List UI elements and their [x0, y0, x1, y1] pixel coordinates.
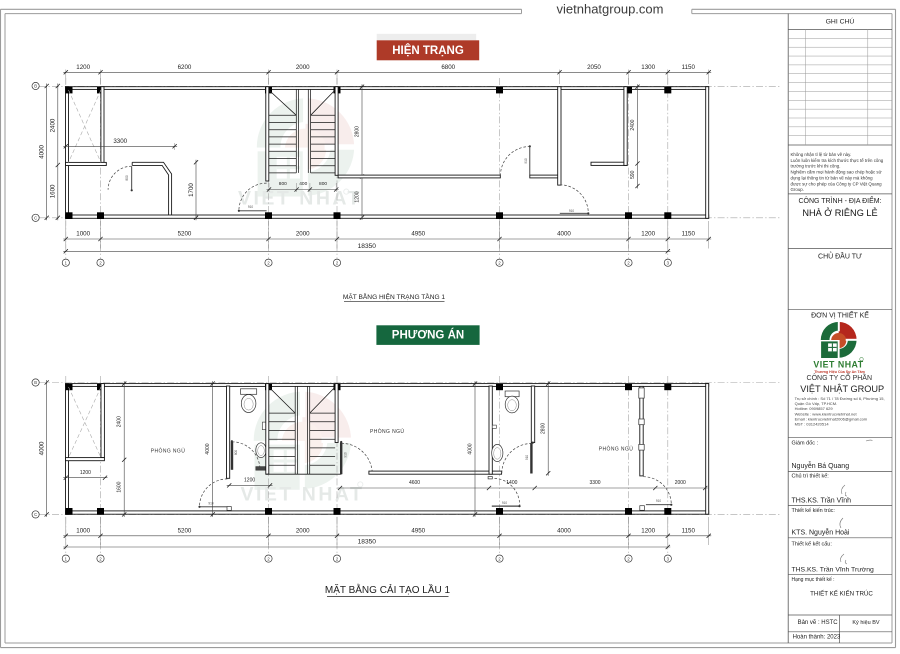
- svg-text:910: 910: [569, 209, 575, 213]
- svg-text:400: 400: [299, 181, 307, 187]
- svg-text:800: 800: [279, 181, 287, 187]
- svg-text:Ký hiệu BV: Ký hiệu BV: [852, 620, 880, 626]
- svg-text:NHÀ Ở RIÊNG LẺ: NHÀ Ở RIÊNG LẺ: [802, 207, 877, 218]
- svg-text:1150: 1150: [682, 64, 696, 71]
- svg-text:MẶT BẰNG CẢI TẠO LẦU 1: MẶT BẰNG CẢI TẠO LẦU 1: [325, 583, 451, 596]
- svg-text:2400: 2400: [117, 416, 123, 427]
- svg-text:4000: 4000: [205, 443, 211, 454]
- svg-text:1200: 1200: [354, 191, 360, 202]
- svg-text:trường trước khi thi công.: trường trước khi thi công.: [791, 164, 841, 169]
- svg-text:4000: 4000: [467, 443, 473, 454]
- svg-text:910: 910: [656, 499, 662, 503]
- svg-text:3300: 3300: [113, 138, 127, 145]
- svg-text:6800: 6800: [441, 64, 455, 71]
- svg-text:1150: 1150: [682, 231, 696, 238]
- svg-text:800: 800: [125, 175, 129, 181]
- svg-text:2000: 2000: [675, 480, 686, 486]
- svg-text:VIET NHAT: VIET NHAT: [813, 359, 863, 369]
- svg-text:910: 910: [525, 455, 529, 461]
- svg-text:PHÒNG NGỦ: PHÒNG NGỦ: [370, 428, 404, 435]
- svg-text:PHÒNG NGỦ: PHÒNG NGỦ: [599, 446, 633, 453]
- svg-text:B: B: [34, 84, 37, 89]
- svg-text:2000: 2000: [296, 528, 310, 535]
- svg-text:THS.KS. Trần Vĩnh Trường: THS.KS. Trần Vĩnh Trường: [792, 564, 875, 573]
- svg-text:910: 910: [208, 501, 214, 505]
- svg-text:1400: 1400: [506, 480, 517, 486]
- svg-text:Nghiêm cấm mọi hành động sao c: Nghiêm cấm mọi hành động sao chép hoặc s…: [791, 170, 882, 175]
- svg-text:4950: 4950: [411, 231, 425, 238]
- svg-text:1200: 1200: [80, 470, 91, 476]
- svg-text:18350: 18350: [358, 243, 377, 250]
- svg-text:2050: 2050: [587, 64, 601, 71]
- svg-text:1600: 1600: [50, 184, 57, 198]
- svg-text:1200: 1200: [244, 478, 255, 484]
- svg-text:1000: 1000: [76, 231, 90, 238]
- svg-text:4950: 4950: [411, 528, 425, 535]
- svg-text:1700: 1700: [188, 183, 195, 197]
- svg-text:Không nhận tỉ lệ từ bản vẽ này: Không nhận tỉ lệ từ bản vẽ này.: [791, 152, 852, 157]
- svg-text:Thiết kế kết cấu:: Thiết kế kết cấu:: [792, 542, 833, 548]
- svg-text:3300: 3300: [589, 480, 600, 486]
- svg-text:THS.KS. Trần Vĩnh: THS.KS. Trần Vĩnh: [792, 496, 852, 505]
- svg-text:Bản vẽ : HSTC: Bản vẽ : HSTC: [798, 620, 839, 626]
- svg-text:4000: 4000: [557, 231, 571, 238]
- svg-text:1600: 1600: [117, 481, 123, 492]
- svg-text:được sự cho phép của Công ty C: được sự cho phép của Công ty CP Việt Qua…: [791, 181, 883, 186]
- svg-text:HIỆN TRẠNG: HIỆN TRẠNG: [392, 44, 464, 57]
- svg-text:KTS. Nguyễn Hoài: KTS. Nguyễn Hoài: [792, 527, 850, 536]
- svg-text:590: 590: [630, 170, 636, 179]
- svg-text:910: 910: [344, 452, 348, 458]
- svg-text:1200: 1200: [641, 528, 655, 535]
- svg-text:Giám đốc :: Giám đốc :: [792, 441, 819, 447]
- svg-text:4000: 4000: [557, 528, 571, 535]
- svg-text:Nguyễn Bá Quang: Nguyễn Bá Quang: [792, 461, 850, 470]
- svg-text:Hoàn thành: 2023: Hoàn thành: 2023: [793, 635, 841, 641]
- svg-text:18350: 18350: [358, 539, 377, 546]
- svg-text:4000: 4000: [39, 441, 46, 455]
- svg-text:800: 800: [319, 181, 327, 187]
- svg-text:PHƯƠNG ÁN: PHƯƠNG ÁN: [392, 329, 464, 342]
- svg-text:MST : 0312420514: MST : 0312420514: [795, 422, 830, 427]
- svg-text:910: 910: [502, 501, 508, 505]
- svg-text:Luôn luôn kiểm tra kích thước: Luôn luôn kiểm tra kích thước thực tế tr…: [791, 158, 884, 163]
- svg-text:dụng lại thông tin từ bản vẽ n: dụng lại thông tin từ bản vẽ này mà khôn…: [791, 175, 874, 180]
- svg-text:1300: 1300: [641, 64, 655, 71]
- svg-text:2000: 2000: [296, 231, 310, 238]
- svg-text:5200: 5200: [178, 231, 192, 238]
- svg-text:Thiết kế kiến trúc:: Thiết kế kiến trúc:: [792, 508, 836, 514]
- svg-text:2800: 2800: [541, 423, 547, 434]
- svg-text:vietnhatgroup.com: vietnhatgroup.com: [557, 2, 664, 17]
- svg-text:2800: 2800: [354, 126, 360, 137]
- svg-text:VIỆT NHẬT GROUP: VIỆT NHẬT GROUP: [800, 384, 884, 394]
- svg-text:THIẾT KẾ KIẾN TRÚC: THIẾT KẾ KIẾN TRÚC: [810, 591, 873, 598]
- svg-text:6200: 6200: [178, 64, 192, 71]
- svg-text:1200: 1200: [76, 64, 90, 71]
- svg-text:Thương Hiệu Của Sự An Tâm: Thương Hiệu Của Sự An Tâm: [814, 370, 865, 374]
- svg-text:Hạng mục thiết kế :: Hạng mục thiết kế :: [792, 577, 835, 583]
- svg-text:Chủ trì thiết kế:: Chủ trì thiết kế:: [792, 473, 830, 480]
- svg-text:800: 800: [234, 450, 238, 456]
- svg-text:5200: 5200: [178, 528, 192, 535]
- svg-text:B: B: [34, 380, 37, 385]
- svg-text:PHÒNG NGỦ: PHÒNG NGỦ: [151, 448, 185, 455]
- svg-text:CÔNG TRÌNH - ĐỊA ĐIỂM:: CÔNG TRÌNH - ĐỊA ĐIỂM:: [798, 196, 881, 205]
- svg-text:2400: 2400: [50, 118, 57, 132]
- svg-text:1150: 1150: [682, 528, 696, 535]
- svg-text:2400: 2400: [630, 119, 636, 130]
- svg-text:GHI CHÚ: GHI CHÚ: [826, 17, 855, 26]
- svg-text:1000: 1000: [76, 528, 90, 535]
- svg-text:1200: 1200: [641, 231, 655, 238]
- svg-text:2000: 2000: [296, 64, 310, 71]
- svg-text:4600: 4600: [409, 480, 420, 486]
- svg-text:4000: 4000: [39, 144, 46, 158]
- svg-text:Group.: Group.: [791, 187, 804, 192]
- svg-text:910: 910: [524, 158, 528, 164]
- svg-text:C: C: [34, 216, 37, 221]
- svg-text:910: 910: [248, 205, 254, 209]
- svg-text:VIET NHAT: VIET NHAT: [241, 484, 365, 506]
- svg-text:C: C: [34, 512, 37, 517]
